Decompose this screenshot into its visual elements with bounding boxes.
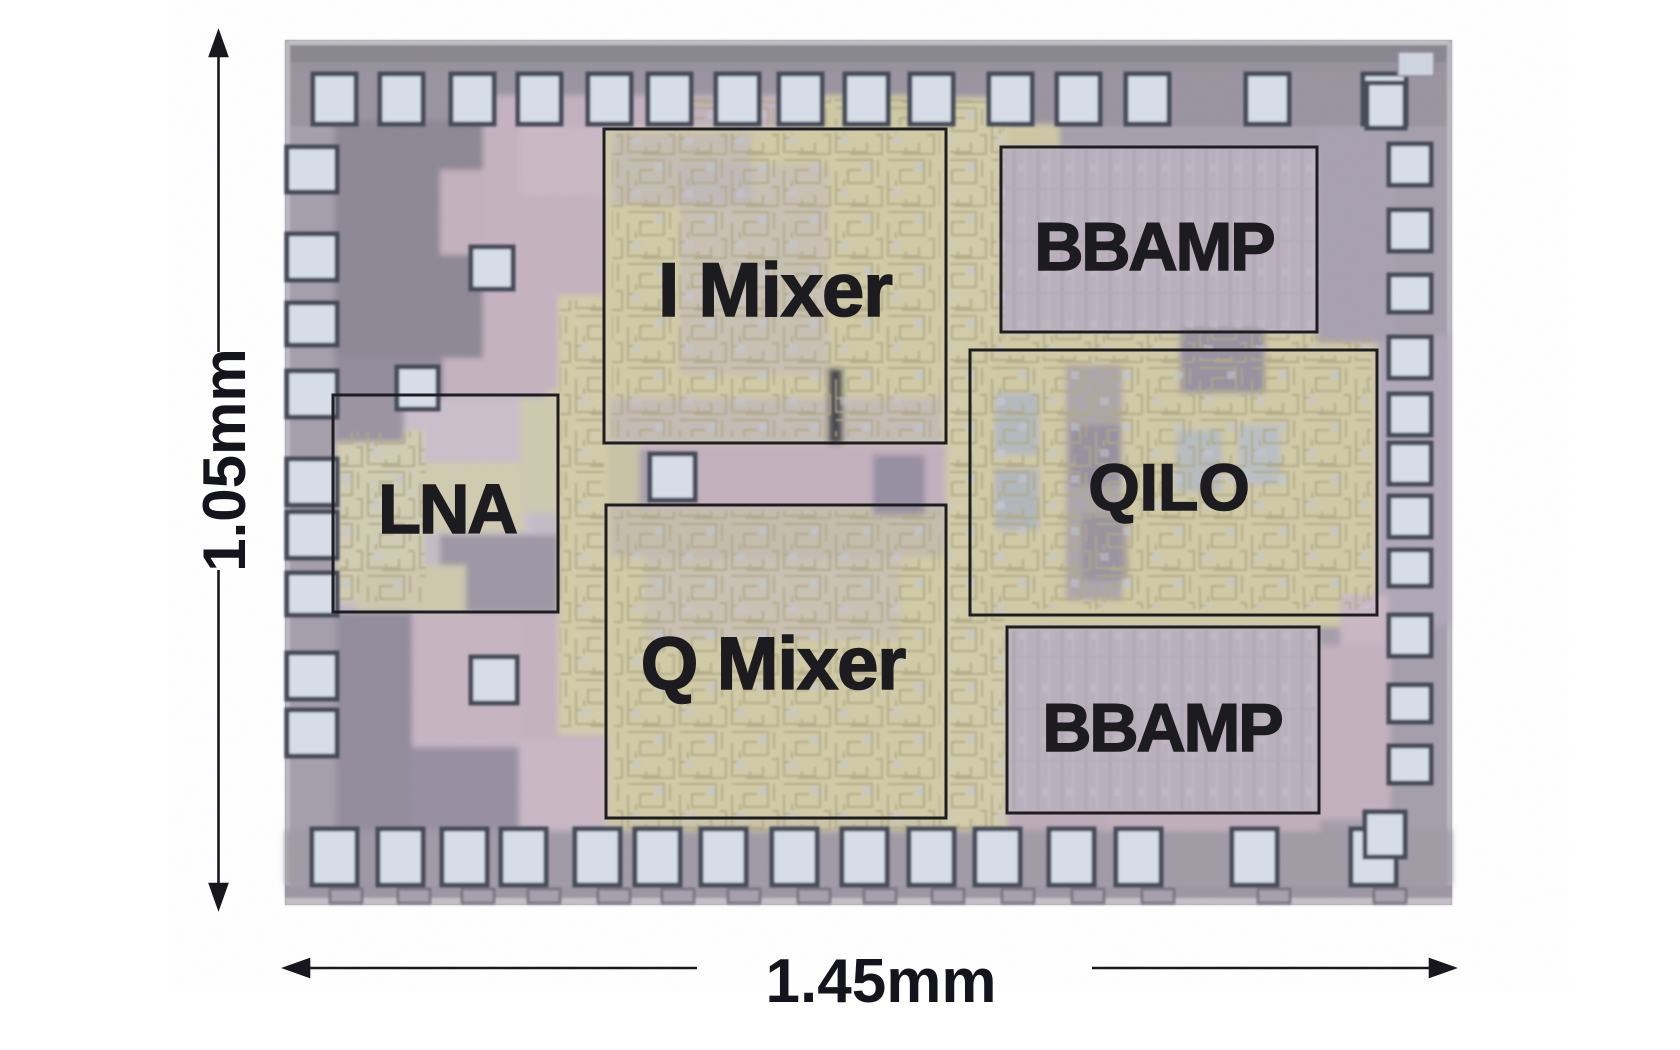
svg-text:BBAMP: BBAMP bbox=[1042, 690, 1282, 766]
svg-text:Q Mixer: Q Mixer bbox=[641, 622, 906, 705]
svg-text:1.05mm: 1.05mm bbox=[191, 348, 258, 571]
svg-text:QILO: QILO bbox=[1088, 450, 1249, 524]
svg-text:I Mixer: I Mixer bbox=[658, 248, 892, 333]
svg-text:1.45mm: 1.45mm bbox=[766, 947, 997, 1016]
svg-text:LNA: LNA bbox=[378, 470, 516, 548]
svg-text:BBAMP: BBAMP bbox=[1034, 209, 1274, 285]
